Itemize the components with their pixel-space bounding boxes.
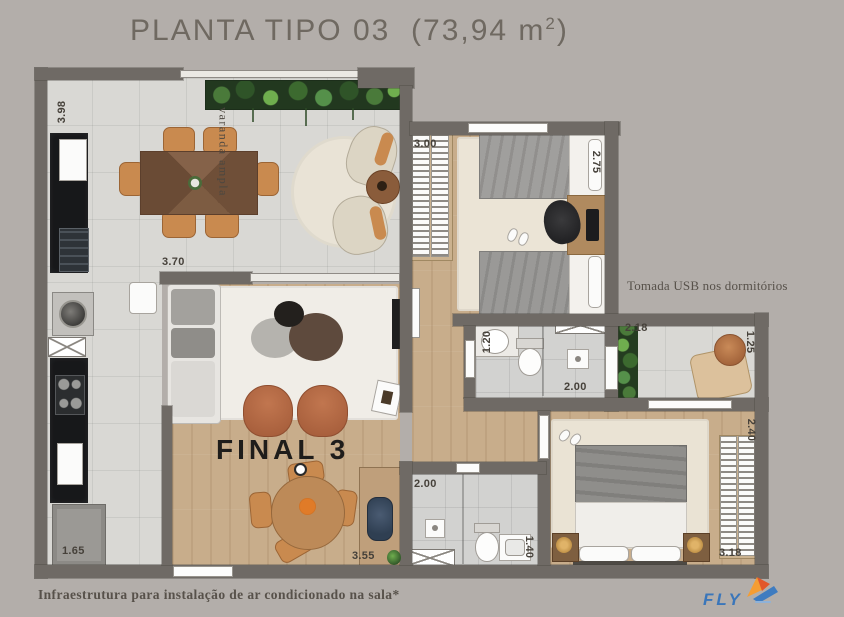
- bedroom1-window: [468, 123, 548, 133]
- fly-logo-text: FLY: [703, 590, 743, 610]
- bath2-basin: [505, 539, 525, 556]
- table-lamp: [556, 537, 572, 553]
- dim-bath2-width: 2.00: [414, 478, 437, 490]
- plant-sprig: [252, 108, 254, 122]
- closet-racks: [720, 436, 737, 556]
- shower-glass: [542, 326, 544, 396]
- wall-left-outer: [35, 68, 47, 578]
- master-bed-duvet: [575, 502, 687, 548]
- pillow: [588, 256, 602, 308]
- sofa-pillows: [171, 328, 215, 358]
- washing-machine: [52, 292, 94, 336]
- page-title: PLANTA TIPO 03 (73,94 m2): [130, 14, 569, 48]
- dim-balcony2-depth: 1.25: [744, 331, 756, 354]
- toilet-bowl: [475, 532, 499, 562]
- desk-monitor: [586, 209, 599, 241]
- usb-note: Tomada USB nos dormitórios: [627, 278, 788, 294]
- twin-bed-blanket: [479, 133, 571, 199]
- dim-balcony2-width: 2.18: [625, 322, 648, 334]
- dim-bedroom2-depth: 2.40: [745, 419, 757, 442]
- closet-racks: [738, 436, 755, 556]
- bath2-door: [456, 463, 480, 473]
- dim-bedroom1-depth: 2.75: [590, 151, 602, 174]
- laundry-tank: [129, 282, 157, 314]
- oven: [59, 228, 89, 272]
- dim-living-length: 3.55: [352, 550, 375, 562]
- bedroom2-door: [539, 415, 549, 459]
- plant-sprig: [305, 108, 307, 126]
- dim-bedroom2-width: 3.18: [719, 547, 742, 559]
- wall-top-corner: [358, 68, 414, 88]
- wall-bottom-outer: [35, 565, 768, 578]
- closet-racks: [431, 135, 449, 257]
- wall-kitchen-divider: [162, 406, 172, 565]
- dining-chair: [255, 162, 279, 196]
- accent-armchair: [297, 385, 348, 437]
- floor-plan-page: PLANTA TIPO 03 (73,94 m2) varanda ampla: [0, 0, 844, 617]
- side-table-dish: [377, 181, 387, 191]
- dim-kitchen-width: 1.65: [62, 545, 85, 557]
- table-centerpiece: [188, 176, 202, 190]
- balcony-label: varanda ampla: [216, 107, 231, 197]
- plan-name: PLANTA TIPO 03: [130, 14, 390, 47]
- shower-drain: [575, 356, 581, 362]
- coffee-rug-black: [274, 301, 304, 327]
- master-bed-blanket: [575, 445, 687, 505]
- entry-door: [173, 566, 233, 577]
- dim-bath2-depth: 1.40: [523, 536, 535, 559]
- dim-bedroom1-width: 3.00: [414, 138, 437, 150]
- plant-icon: [387, 550, 401, 565]
- kitchen-sink: [59, 139, 87, 181]
- shower-glass: [462, 474, 464, 564]
- fly-logo-tagline: [755, 601, 771, 603]
- wall-bath2-left: [400, 462, 412, 565]
- closet-racks: [412, 135, 430, 257]
- bedroom1-door-leaf: [411, 288, 420, 338]
- wall-right-outer: [755, 313, 768, 578]
- wall-living-dining: [160, 272, 252, 284]
- plant-sprig: [352, 108, 354, 120]
- wall-mid-band: [453, 314, 768, 326]
- round-table-chair: [248, 491, 273, 529]
- tv: [392, 299, 400, 349]
- hallway-floor-2: [466, 411, 538, 462]
- twin-bed-blanket: [479, 251, 571, 315]
- balcony-railing: [180, 70, 362, 78]
- stove-cooktop: [55, 375, 85, 415]
- sofa-pillows: [171, 289, 215, 325]
- dim-bath1-width: 2.00: [564, 381, 587, 393]
- table-plate: [294, 463, 307, 476]
- sliding-glass-door: [250, 273, 400, 282]
- toilet-bowl: [518, 348, 542, 376]
- hallway-floor: [412, 326, 466, 462]
- pillow: [631, 546, 681, 562]
- terrace-cushion: [714, 334, 746, 366]
- fly-logo: FLY: [703, 583, 803, 615]
- footer-note: Infraestrutura para instalação de ar con…: [38, 587, 400, 603]
- bath1-garden-window: [605, 346, 618, 390]
- vent-shaft: [48, 337, 86, 357]
- bath1-door: [465, 340, 475, 378]
- dim-kitchen-depth: 3.98: [56, 101, 68, 124]
- pillow: [579, 546, 629, 562]
- kitchen-sink-2: [57, 443, 83, 485]
- unit-label: FINAL 3: [216, 434, 349, 466]
- accent-armchair: [243, 385, 293, 437]
- sofa-chaise: [171, 361, 215, 417]
- fly-bird-icon: [741, 575, 779, 603]
- shower-drain: [432, 525, 438, 531]
- fruit-bowl: [299, 498, 316, 515]
- plan-area: (73,94 m2): [401, 14, 569, 47]
- wall-top-left: [35, 68, 183, 80]
- bedroom2-window: [648, 400, 732, 409]
- dim-living-width: 3.70: [162, 256, 185, 268]
- dim-bath1-depth: 1.20: [481, 331, 493, 354]
- table-lamp: [687, 537, 703, 553]
- sideboard-object: [367, 497, 393, 541]
